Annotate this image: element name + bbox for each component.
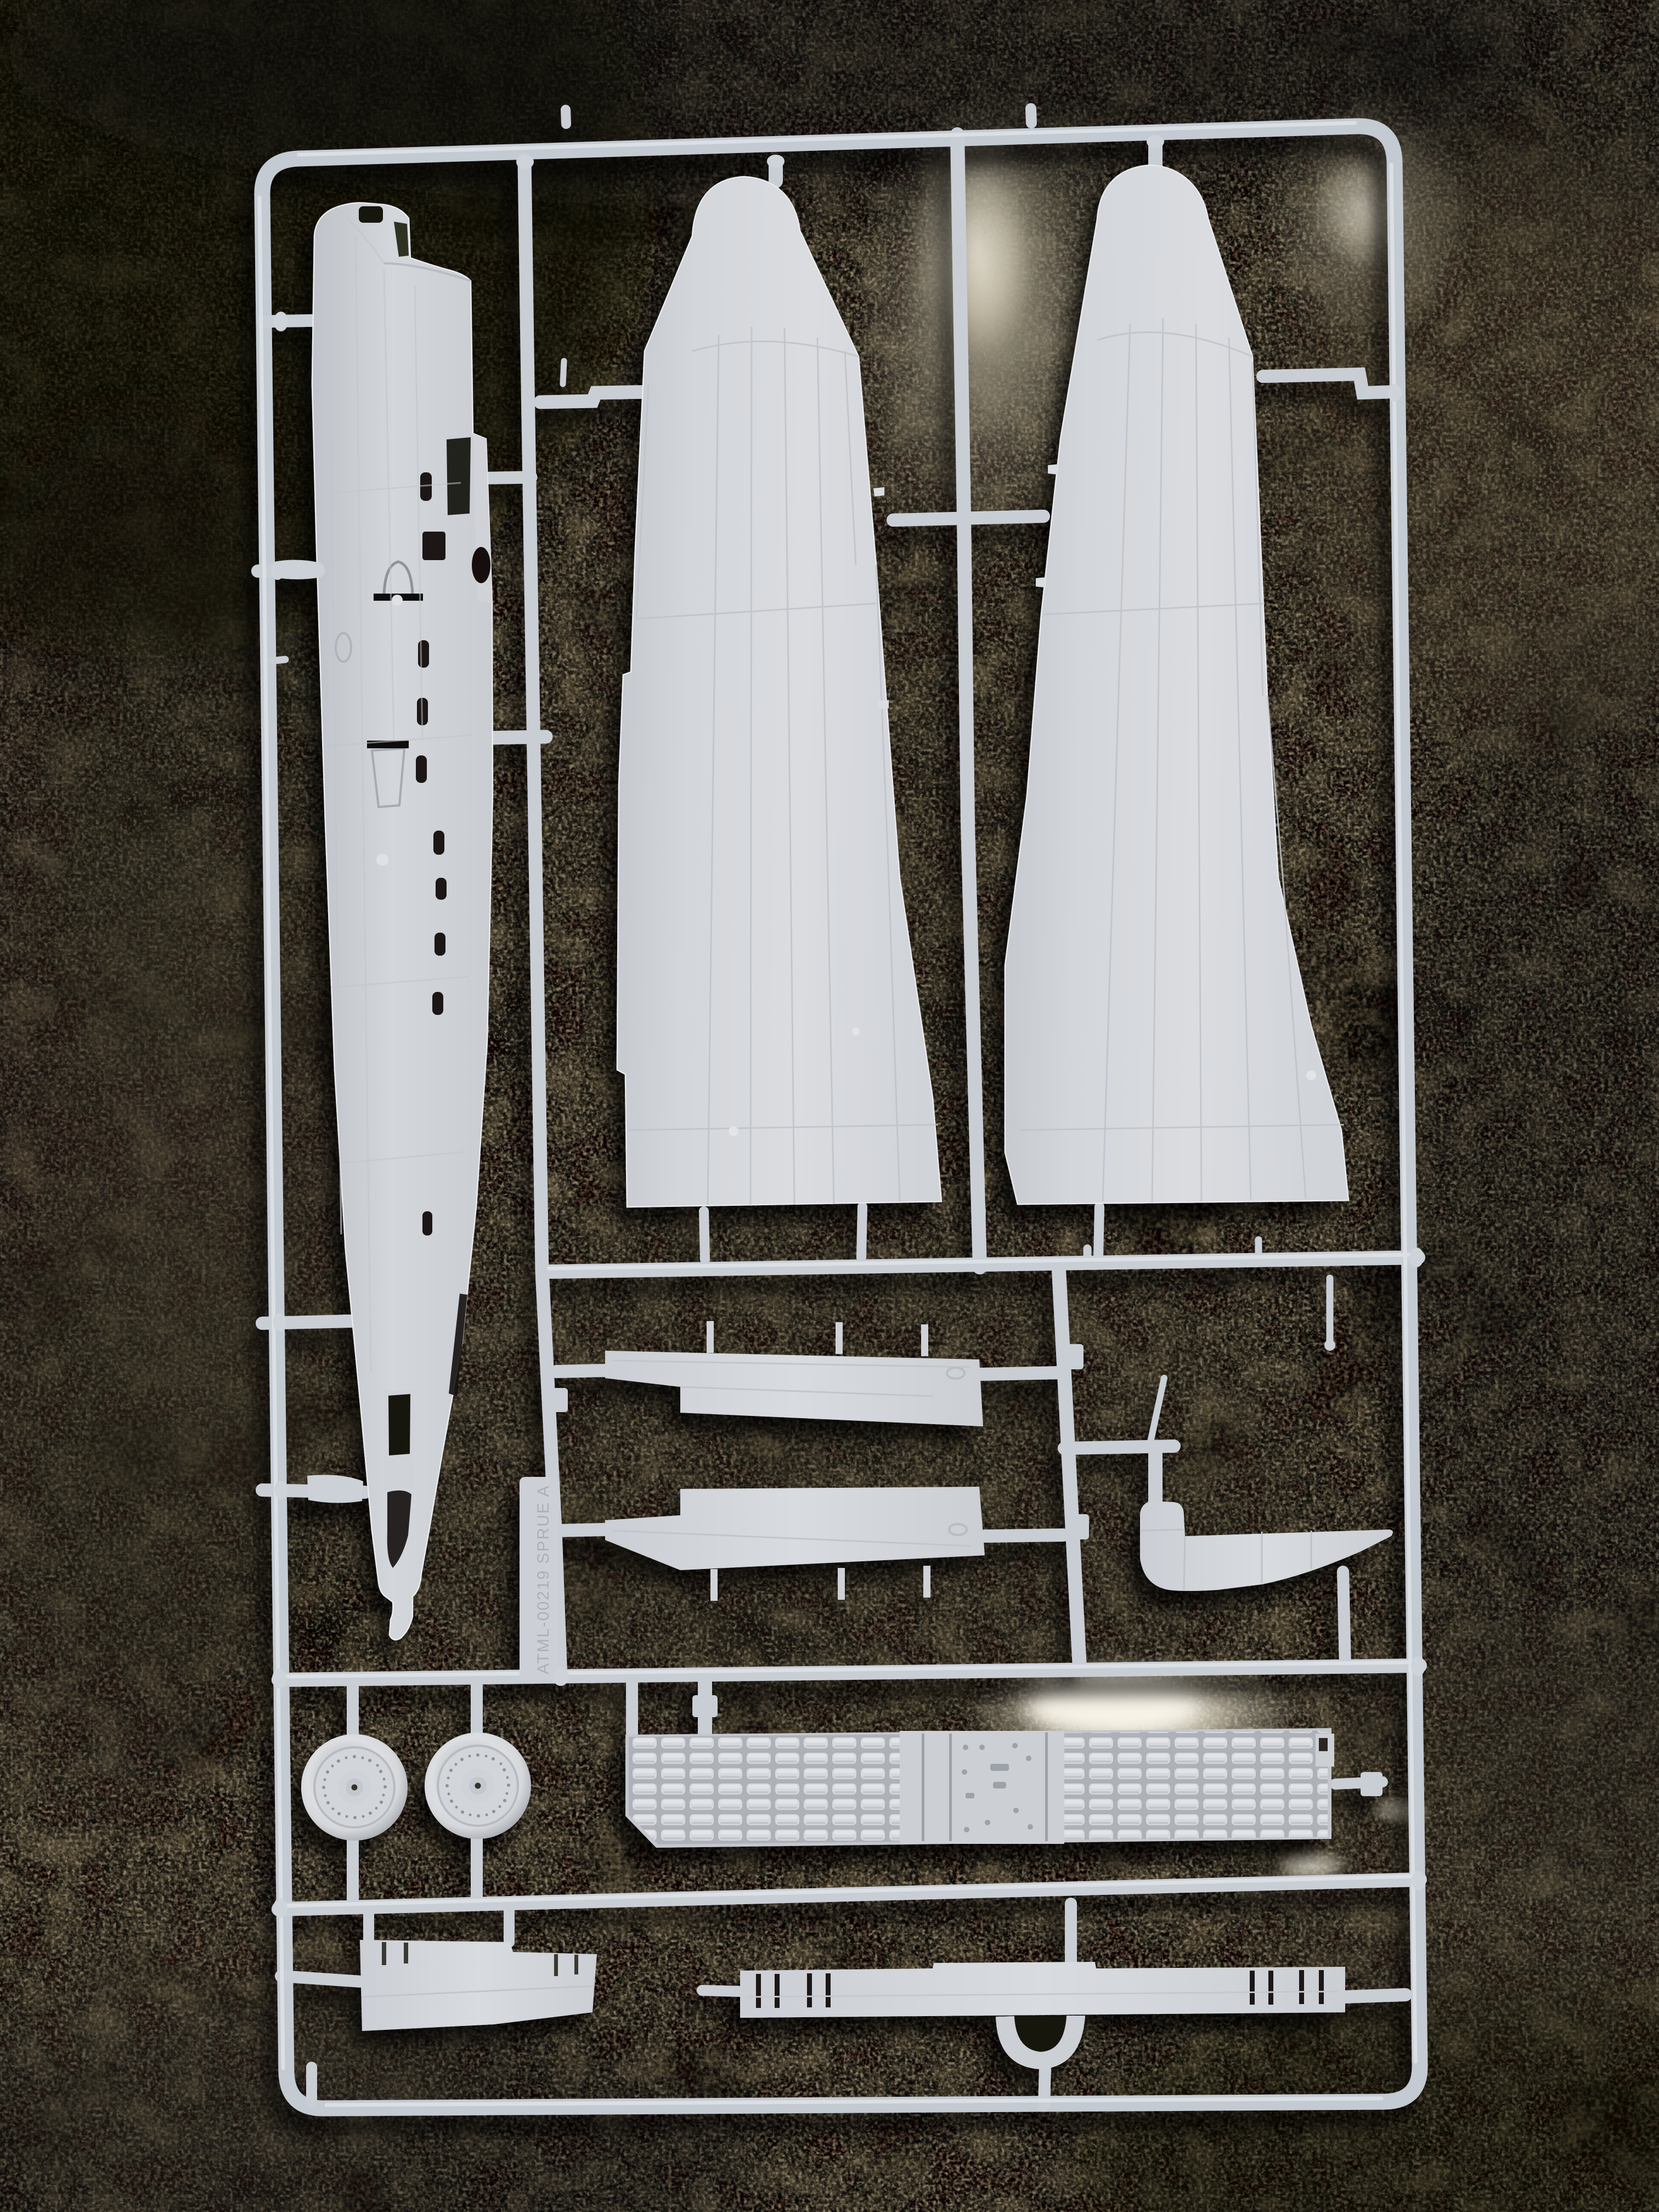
svg-text:ATML-00219 SPRUE A: ATML-00219 SPRUE A: [534, 1485, 552, 1674]
